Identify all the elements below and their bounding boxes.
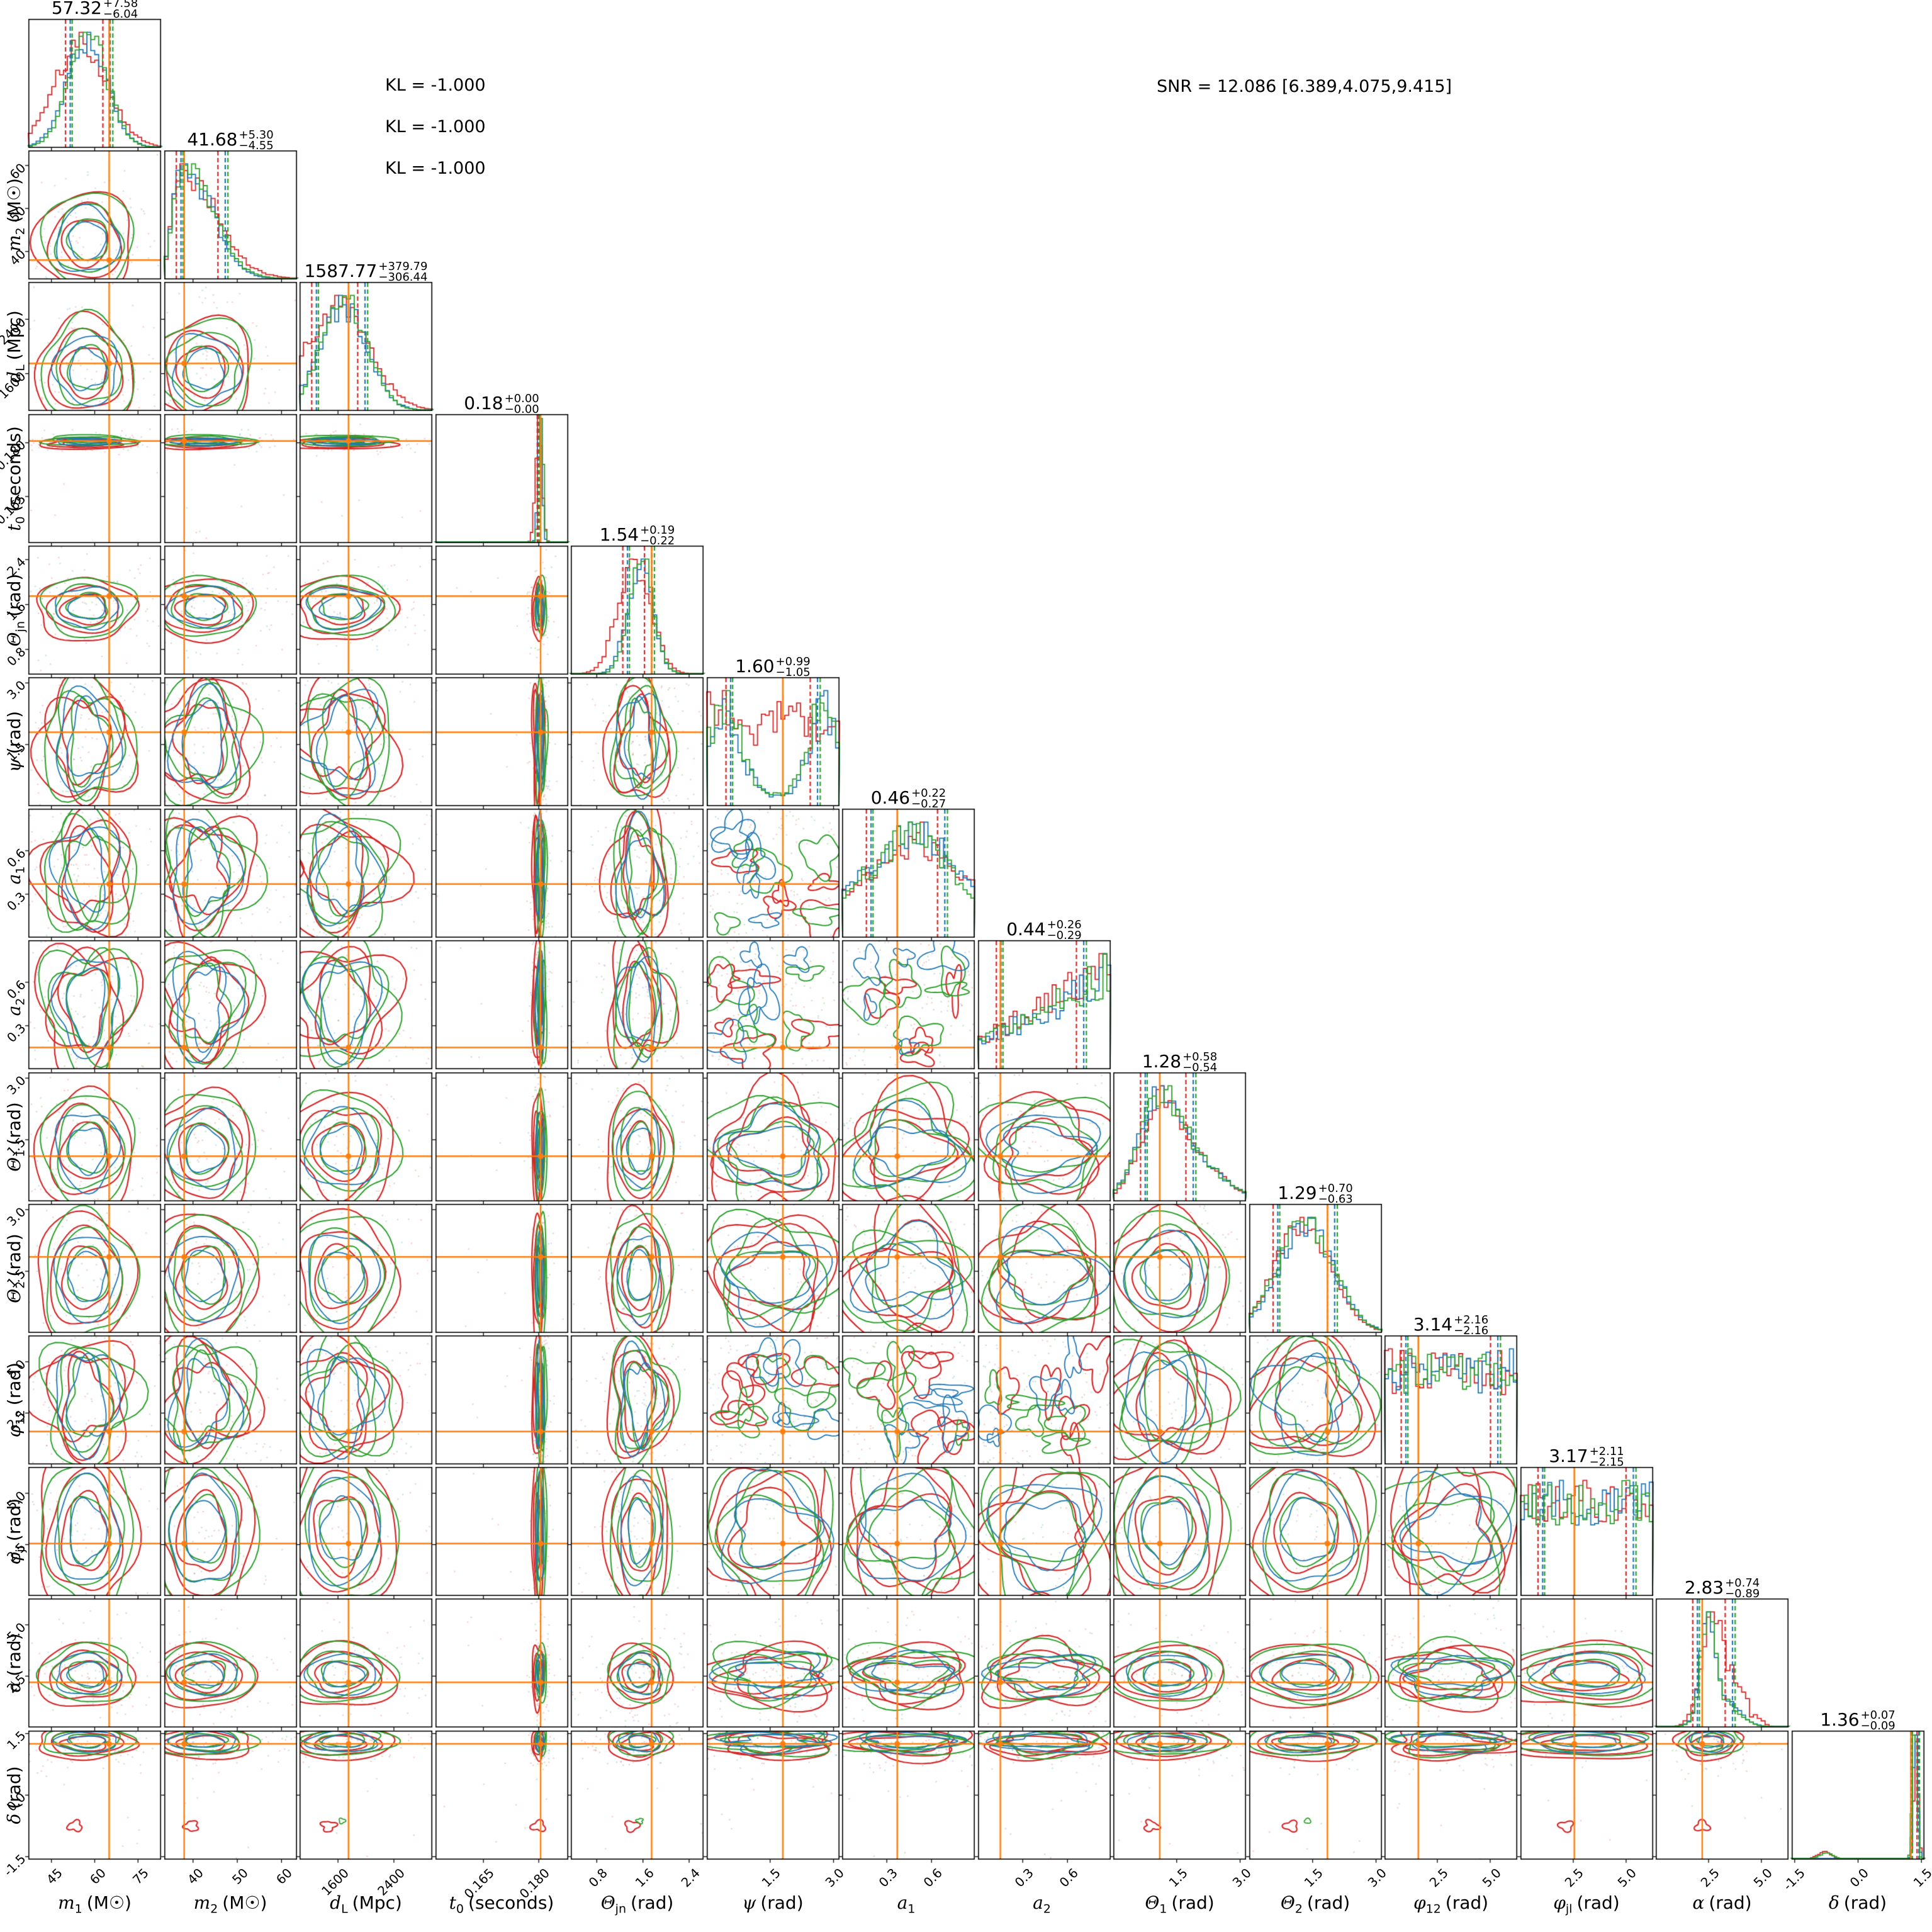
x-axis-label-psi: ψ(rad) [707,1892,840,1916]
panel-m2-vs-m1 [28,150,161,279]
panel-canvas-phi_jl-a2 [972,1466,1116,1603]
panel-theta2-vs-m1 [28,1204,161,1333]
panel-t0-vs-m2 [164,414,297,543]
diag-title-m2: 41.68+5.30−4.55 [164,130,297,151]
panel-phi12-vs-a2 [978,1335,1111,1464]
panel-canvas-delta-m2 [159,1729,303,1867]
panel-canvas-psi-t0 [430,676,574,814]
panel-delta-vs-a1 [842,1731,975,1860]
panel-delta-vs-phi12 [1384,1731,1517,1860]
diag-title-t0: 0.18+0.00−0.00 [435,393,568,415]
panel-delta-vs-t0 [435,1731,568,1860]
panel-canvas-delta-phi_jl [1515,1729,1659,1867]
panel-canvas-dL-m2 [159,281,303,418]
x-tick-label: 5.0 [1479,1865,1503,1890]
hist-canvas-dL [294,281,438,418]
diag-title-a1: 0.46+0.22−0.27 [842,788,975,809]
hist-canvas-m2 [159,149,303,287]
hist-panel-psi [707,677,840,806]
x-tick-label: 3.0 [1365,1865,1390,1890]
panel-canvas-phi12-dL [294,1334,438,1472]
panel-phi12-vs-theta_jn [571,1335,704,1464]
panel-delta-vs-psi [707,1731,840,1860]
panel-canvas-phi12-theta_jn [565,1334,709,1472]
diag-title-phi12: 3.14+2.16−2.16 [1384,1315,1517,1336]
panel-phi12-vs-psi [707,1335,840,1464]
y-axis-label-phi12: φ12(rad) [4,1335,28,1464]
panel-canvas-phi_jl-m1 [23,1466,167,1603]
panel-canvas-theta1-m2 [159,1071,303,1209]
panel-delta-vs-dL [300,1731,432,1860]
x-tick-label: 0.8 [586,1865,610,1890]
snr-annotation: SNR = 12.086 [6.389,4.075,9.415] [1157,77,1452,97]
panel-phi_jl-vs-psi [707,1467,840,1596]
hist-canvas-a2 [972,939,1116,1077]
panel-canvas-a2-a1 [836,939,980,1077]
x-tick-label: 45 [43,1865,65,1887]
panel-a2-vs-theta_jn [571,940,704,1069]
panel-alpha-vs-psi [707,1598,840,1727]
panel-phi12-vs-t0 [435,1335,568,1464]
panel-canvas-a1-t0 [430,807,574,945]
hist-canvas-t0 [430,413,574,551]
x-tick-label: 1.5 [1165,1865,1190,1890]
x-tick-label: 2.5 [1562,1865,1587,1890]
hist-canvas-psi [701,676,845,814]
panel-canvas-theta1-m1 [23,1071,167,1209]
panel-theta2-vs-m2 [164,1204,297,1333]
x-axis-label-m1: m1(M☉) [28,1892,161,1916]
x-axis-label-t0: t0(seconds) [435,1892,568,1916]
panel-alpha-vs-phi12 [1384,1598,1517,1727]
panel-theta2-vs-psi [707,1204,840,1333]
panel-theta2-vs-a2 [978,1204,1111,1333]
panel-canvas-phi_jl-theta1 [1108,1466,1252,1603]
panel-canvas-a1-m1 [23,807,167,945]
x-tick-label: 3.0 [1229,1865,1254,1890]
panel-canvas-alpha-t0 [430,1597,574,1735]
panel-theta1-vs-m2 [164,1072,297,1201]
x-axis-label-alpha: α(rad) [1656,1892,1789,1916]
panel-canvas-phi12-a1 [836,1334,980,1472]
x-tick-label: 0.3 [1011,1865,1036,1890]
panel-canvas-phi12-m2 [159,1334,303,1472]
x-axis-label-phi_jl: φjl(rad) [1520,1892,1653,1916]
panel-canvas-alpha-m1 [23,1597,167,1735]
panel-canvas-phi_jl-psi [701,1466,845,1603]
panel-theta1-vs-dL [300,1072,432,1201]
hist-canvas-m1 [23,18,167,155]
x-axis-label-theta2: Θ2(rad) [1249,1892,1382,1916]
panel-canvas-phi12-psi [701,1334,845,1472]
hist-panel-a1 [842,809,975,938]
panel-canvas-a2-psi [701,939,845,1077]
panel-a1-vs-m2 [164,809,297,938]
hist-canvas-delta [1786,1729,1930,1867]
panel-theta_jn-vs-t0 [435,546,568,675]
x-tick-label: 5.0 [1615,1865,1639,1890]
panel-canvas-delta-a1 [836,1729,980,1867]
hist-panel-dL [300,282,432,411]
panel-canvas-alpha-a2 [972,1597,1116,1735]
diag-title-theta2: 1.29+0.70−0.63 [1249,1183,1382,1205]
panel-phi_jl-vs-t0 [435,1467,568,1596]
panel-alpha-vs-theta2 [1249,1598,1382,1727]
panel-canvas-a2-m1 [23,939,167,1077]
x-tick-label: 50 [229,1865,251,1887]
panel-dL-vs-m1 [28,282,161,411]
panel-canvas-alpha-dL [294,1597,438,1735]
hist-panel-delta [1792,1731,1924,1860]
panel-alpha-vs-phi_jl [1520,1598,1653,1727]
panel-delta-vs-phi_jl [1520,1731,1653,1860]
panel-canvas-theta_jn-m1 [23,544,167,682]
x-tick-label: 40 [184,1865,206,1887]
panel-delta-vs-m2 [164,1731,297,1860]
x-tick-label: 1.5 [759,1865,783,1890]
x-axis-label-a2: a2 [978,1892,1111,1916]
diag-title-alpha: 2.83+0.74−0.89 [1656,1578,1789,1599]
corner-plot-figure: KL = -1.000 KL = -1.000 KL = -1.000 SNR … [0,0,1932,1932]
panel-canvas-delta-t0 [430,1729,574,1867]
x-axis-label-a1: a1 [842,1892,975,1916]
x-axis-label-delta: δ(rad) [1792,1892,1924,1916]
x-axis-label-dL: dL(Mpc) [300,1892,432,1916]
x-axis-label-phi12: φ12(rad) [1384,1892,1517,1916]
panel-phi12-vs-theta1 [1113,1335,1246,1464]
panel-canvas-theta1-a1 [836,1071,980,1209]
panel-canvas-theta_jn-dL [294,544,438,682]
y-axis-label-a2: a2 [4,940,28,1069]
hist-panel-a2 [978,940,1111,1069]
panel-canvas-theta1-dL [294,1071,438,1209]
diag-title-delta: 1.36+0.07−0.09 [1792,1710,1924,1731]
panel-canvas-alpha-theta2 [1244,1597,1388,1735]
panel-canvas-delta-psi [701,1729,845,1867]
panel-canvas-t0-m2 [159,413,303,551]
panel-a1-vs-t0 [435,809,568,938]
diag-title-phi_jl: 3.17+2.11−2.15 [1520,1446,1653,1468]
panel-a2-vs-psi [707,940,840,1069]
panel-canvas-psi-theta_jn [565,676,709,814]
panel-alpha-vs-t0 [435,1598,568,1727]
y-axis-label-phi_jl: φjl(rad) [4,1467,28,1596]
hist-panel-phi12 [1384,1335,1517,1464]
x-axis-label-theta_jn: Θjn(rad) [571,1892,704,1916]
panel-canvas-alpha-psi [701,1597,845,1735]
panel-canvas-phi_jl-theta_jn [565,1466,709,1603]
panel-theta1-vs-a1 [842,1072,975,1201]
kl-annotation-3: KL = -1.000 [385,159,486,179]
panel-phi_jl-vs-m2 [164,1467,297,1596]
panel-delta-vs-theta1 [1113,1731,1246,1860]
panel-canvas-a1-m2 [159,807,303,945]
x-tick-label: 0.3 [876,1865,901,1890]
panel-canvas-phi12-theta2 [1244,1334,1388,1472]
diag-title-dL: 1587.77+379.79−306.44 [300,261,432,283]
panel-alpha-vs-m2 [164,1598,297,1727]
panel-canvas-t0-m1 [23,413,167,551]
panel-theta1-vs-a2 [978,1072,1111,1201]
panel-canvas-psi-dL [294,676,438,814]
panel-alpha-vs-m1 [28,1598,161,1727]
panel-phi_jl-vs-a2 [978,1467,1111,1596]
panel-canvas-phi12-a2 [972,1334,1116,1472]
y-axis-label-a1: a1 [4,809,28,938]
y-axis-label-t0: t0(seconds) [4,414,28,543]
panel-phi12-vs-m2 [164,1335,297,1464]
panel-canvas-theta2-a2 [972,1203,1116,1340]
panel-canvas-phi_jl-m2 [159,1466,303,1603]
panel-psi-vs-dL [300,677,432,806]
panel-canvas-theta1-t0 [430,1071,574,1209]
panel-canvas-delta-theta2 [1244,1729,1388,1867]
x-tick-label: -1.5 [1780,1865,1809,1894]
x-tick-label: 75 [130,1865,152,1887]
panel-canvas-a1-dL [294,807,438,945]
panel-canvas-t0-dL [294,413,438,551]
panel-canvas-m2-m1 [23,149,167,287]
hist-panel-m1 [28,19,161,148]
panel-canvas-a2-theta_jn [565,939,709,1077]
panel-phi_jl-vs-a1 [842,1467,975,1596]
panel-canvas-theta2-dL [294,1203,438,1340]
panel-canvas-dL-m1 [23,281,167,418]
panel-a2-vs-m1 [28,940,161,1069]
panel-theta_jn-vs-dL [300,546,432,675]
panel-psi-vs-m2 [164,677,297,806]
panel-a1-vs-dL [300,809,432,938]
panel-psi-vs-m1 [28,677,161,806]
panel-canvas-delta-theta1 [1108,1729,1252,1867]
panel-canvas-a2-t0 [430,939,574,1077]
panel-phi12-vs-m1 [28,1335,161,1464]
panel-canvas-theta2-theta1 [1108,1203,1252,1340]
panel-phi12-vs-a1 [842,1335,975,1464]
panel-canvas-phi_jl-a1 [836,1466,980,1603]
diag-title-psi: 1.60+0.99−1.05 [707,656,840,678]
hist-canvas-alpha [1650,1597,1794,1735]
panel-canvas-theta_jn-m2 [159,544,303,682]
panel-delta-vs-m1 [28,1731,161,1860]
panel-canvas-delta-m1 [23,1729,167,1867]
panel-delta-vs-a2 [978,1731,1111,1860]
panel-canvas-theta2-m2 [159,1203,303,1340]
x-tick-label: 2.5 [1426,1865,1451,1890]
panel-t0-vs-dL [300,414,432,543]
panel-theta2-vs-dL [300,1204,432,1333]
x-tick-label: 5.0 [1750,1865,1775,1890]
x-tick-label: 2.5 [1697,1865,1722,1890]
panel-t0-vs-m1 [28,414,161,543]
y-axis-label-alpha: α(rad) [4,1598,28,1727]
panel-alpha-vs-theta1 [1113,1598,1246,1727]
panel-canvas-a1-psi [701,807,845,945]
x-tick-label: 2.4 [678,1865,703,1890]
hist-panel-theta2 [1249,1204,1382,1333]
panel-delta-vs-theta_jn [571,1731,704,1860]
panel-a1-vs-theta_jn [571,809,704,938]
hist-canvas-phi12 [1379,1334,1523,1472]
panel-a2-vs-dL [300,940,432,1069]
panel-phi12-vs-theta2 [1249,1335,1382,1464]
panel-alpha-vs-a2 [978,1598,1111,1727]
panel-theta1-vs-m1 [28,1072,161,1201]
panel-canvas-theta2-a1 [836,1203,980,1340]
hist-panel-alpha [1656,1598,1789,1727]
panel-canvas-theta_jn-t0 [430,544,574,682]
x-tick-label: 1.5 [1910,1865,1932,1890]
panel-theta1-vs-theta_jn [571,1072,704,1201]
panel-canvas-delta-phi12 [1379,1729,1523,1867]
x-tick-label: 0.6 [1056,1865,1081,1890]
panel-canvas-phi12-theta1 [1108,1334,1252,1472]
hist-panel-theta_jn [571,546,704,675]
x-axis-label-m2: m2(M☉) [164,1892,297,1916]
panel-canvas-a2-m2 [159,939,303,1077]
panel-a2-vs-a1 [842,940,975,1069]
panel-canvas-phi_jl-t0 [430,1466,574,1603]
x-axis-label-theta1: Θ1(rad) [1113,1892,1246,1916]
kl-annotation-1: KL = -1.000 [385,76,486,96]
panel-a2-vs-m2 [164,940,297,1069]
panel-alpha-vs-dL [300,1598,432,1727]
panel-canvas-delta-alpha [1650,1729,1794,1867]
panel-canvas-delta-theta_jn [565,1729,709,1867]
panel-psi-vs-theta_jn [571,677,704,806]
panel-canvas-phi_jl-dL [294,1466,438,1603]
panel-canvas-phi_jl-phi12 [1379,1466,1523,1603]
panel-phi_jl-vs-phi12 [1384,1467,1517,1596]
diag-title-theta1: 1.28+0.58−0.54 [1113,1052,1246,1073]
panel-canvas-alpha-theta1 [1108,1597,1252,1735]
panel-canvas-a1-theta_jn [565,807,709,945]
panel-canvas-theta2-m1 [23,1203,167,1340]
hist-panel-m2 [164,150,297,279]
panel-canvas-alpha-phi_jl [1515,1597,1659,1735]
x-tick-label: 1.5 [1301,1865,1326,1890]
hist-panel-t0 [435,414,568,543]
panel-phi12-vs-dL [300,1335,432,1464]
panel-dL-vs-m2 [164,282,297,411]
panel-canvas-psi-m1 [23,676,167,814]
hist-panel-theta1 [1113,1072,1246,1201]
panel-canvas-theta2-t0 [430,1203,574,1340]
panel-theta2-vs-a1 [842,1204,975,1333]
panel-delta-vs-alpha [1656,1731,1789,1860]
hist-canvas-theta2 [1244,1203,1388,1340]
diag-title-a2: 0.44+0.26−0.29 [978,919,1111,941]
panel-canvas-phi_jl-theta2 [1244,1466,1388,1603]
panel-canvas-theta2-psi [701,1203,845,1340]
hist-canvas-theta1 [1108,1071,1252,1209]
panel-theta_jn-vs-m1 [28,546,161,675]
panel-theta2-vs-t0 [435,1204,568,1333]
x-tick-label: 0.6 [921,1865,945,1890]
panel-canvas-alpha-a1 [836,1597,980,1735]
panel-phi_jl-vs-theta1 [1113,1467,1246,1596]
panel-canvas-theta2-theta_jn [565,1203,709,1340]
x-tick-label: 1.6 [632,1865,656,1890]
kl-annotation-2: KL = -1.000 [385,117,486,137]
diag-title-m1: 57.32+7.58−6.04 [28,0,161,20]
panel-canvas-alpha-phi12 [1379,1597,1523,1735]
panel-a1-vs-psi [707,809,840,938]
panel-canvas-alpha-theta_jn [565,1597,709,1735]
x-tick-label: 60 [87,1865,109,1887]
panel-phi_jl-vs-theta_jn [571,1467,704,1596]
panel-canvas-theta1-a2 [972,1071,1116,1209]
x-tick-label: 3.0 [823,1865,847,1890]
hist-canvas-a1 [836,807,980,945]
diag-title-theta_jn: 1.54+0.19−0.22 [571,525,704,546]
panel-canvas-delta-dL [294,1729,438,1867]
panel-theta1-vs-psi [707,1072,840,1201]
hist-canvas-phi_jl [1515,1466,1659,1603]
panel-canvas-theta1-theta_jn [565,1071,709,1209]
hist-panel-phi_jl [1520,1467,1653,1596]
panel-a1-vs-m1 [28,809,161,938]
panel-phi_jl-vs-theta2 [1249,1467,1382,1596]
panel-phi_jl-vs-dL [300,1467,432,1596]
panel-canvas-theta1-psi [701,1071,845,1209]
panel-canvas-a2-dL [294,939,438,1077]
panel-alpha-vs-theta_jn [571,1598,704,1727]
x-tick-label: 0.0 [1847,1865,1872,1890]
panel-theta1-vs-t0 [435,1072,568,1201]
panel-theta2-vs-theta1 [1113,1204,1246,1333]
panel-canvas-alpha-m2 [159,1597,303,1735]
panel-alpha-vs-a1 [842,1598,975,1727]
panel-canvas-phi12-m1 [23,1334,167,1472]
panel-a2-vs-t0 [435,940,568,1069]
x-tick-label: 60 [273,1865,295,1887]
panel-delta-vs-theta2 [1249,1731,1382,1860]
hist-canvas-theta_jn [565,544,709,682]
panel-phi_jl-vs-m1 [28,1467,161,1596]
panel-theta2-vs-theta_jn [571,1204,704,1333]
panel-psi-vs-t0 [435,677,568,806]
panel-canvas-delta-a2 [972,1729,1116,1867]
panel-theta_jn-vs-m2 [164,546,297,675]
panel-canvas-psi-m2 [159,676,303,814]
panel-canvas-phi12-t0 [430,1334,574,1472]
